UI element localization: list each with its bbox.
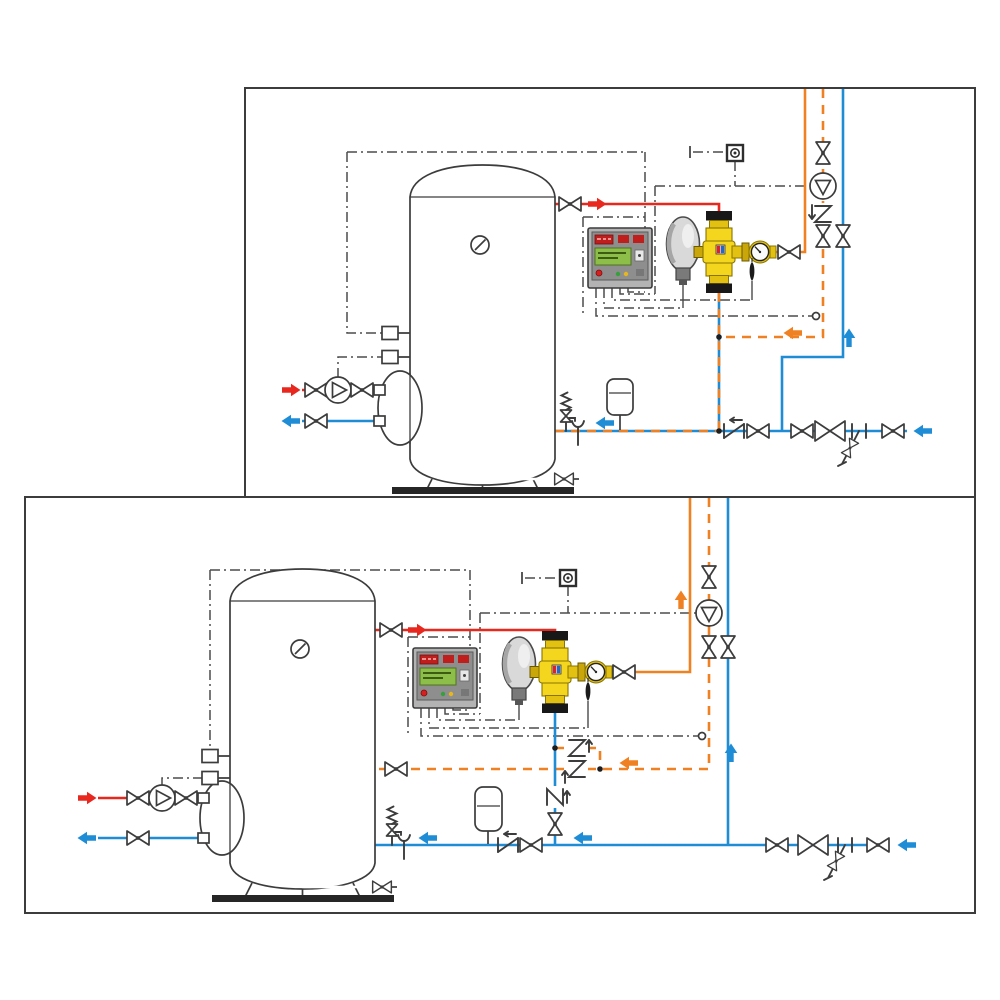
panel-bottom-scheme [25, 497, 975, 913]
tank-sensor-upper [202, 750, 218, 763]
tank-base-plate [392, 487, 574, 494]
check-valve-swing [498, 832, 518, 853]
junction [716, 428, 722, 434]
cold-flow-arrow [282, 415, 301, 428]
ball-valve [867, 838, 889, 852]
ball-valve [778, 245, 800, 259]
ball-valve [882, 424, 904, 438]
tank-base-plate [212, 895, 394, 902]
tank-drain-valve [373, 881, 392, 893]
mixing-valve-assembly [667, 211, 777, 293]
cold-recirc-combined-overlay [555, 293, 719, 431]
ball-valve [380, 623, 402, 637]
balancing-valve [815, 421, 845, 441]
recirculation-pump [810, 173, 836, 199]
primary-pump [149, 785, 175, 811]
ball-valve [766, 838, 788, 852]
recirculation-pump [696, 600, 722, 626]
tank-drain-valve [555, 473, 574, 485]
mixing-controller [588, 228, 652, 288]
storage-tank-bottom [198, 569, 397, 902]
ball-valve [702, 566, 716, 588]
ball-valve [613, 665, 635, 679]
mixed-water-riser [776, 89, 805, 252]
cold-water-riser [782, 89, 843, 431]
hot-flow-arrow [408, 624, 427, 637]
page [0, 0, 1000, 1000]
ball-valve [559, 197, 581, 211]
cold-flow-arrow [78, 832, 97, 845]
ball-valve [520, 838, 542, 852]
cold-flow-arrow [843, 329, 856, 348]
storage-tank-top [374, 165, 579, 494]
safety-relief-valve [387, 807, 411, 860]
ball-valve [816, 142, 830, 164]
recirculation-sensor-icon [699, 733, 706, 740]
ball-valve [175, 791, 197, 805]
hot-flow-arrow [78, 792, 97, 805]
cold-flow-arrow [725, 744, 738, 763]
ball-valve [747, 424, 769, 438]
recirc-flow-arrow [784, 327, 803, 340]
ball-valve [816, 225, 830, 247]
ball-valve [721, 636, 735, 658]
safety-relief-valve [561, 393, 585, 446]
balancing-valve [798, 835, 828, 855]
recirc-flow-arrow [620, 757, 639, 770]
mixed-flow-arrow [675, 591, 688, 610]
heat-exchanger-flange [378, 371, 422, 445]
heat-exchanger-flange [200, 781, 244, 855]
junction [552, 745, 558, 751]
expansion-vessel [475, 787, 502, 844]
ball-valve [305, 383, 327, 397]
ball-valve [351, 383, 373, 397]
sensor-wiring-top [338, 152, 812, 378]
ball-valve [305, 414, 327, 428]
ball-valve [127, 791, 149, 805]
hot-flow-arrow [282, 384, 301, 397]
cold-flow-arrow [574, 832, 593, 845]
ambient-sensor [560, 570, 576, 586]
ball-valve [385, 762, 407, 776]
cold-inlet-arrow [898, 839, 917, 852]
mixed-water-riser [612, 498, 690, 672]
cold-inlet-arrow [914, 425, 933, 438]
mixing-controller [413, 648, 477, 708]
tank-sensor-lower [202, 772, 218, 785]
ball-valve [548, 813, 562, 835]
check-valve-swing [724, 418, 744, 439]
panel-top-scheme [245, 88, 975, 497]
ball-valve [791, 424, 813, 438]
cold-flow-arrow [596, 417, 615, 430]
tank-sensor-lower [382, 351, 398, 364]
recirculation-sensor-icon [813, 313, 820, 320]
ball-valve [702, 636, 716, 658]
tank-sensor-upper [382, 327, 398, 340]
ball-valve [127, 831, 149, 845]
junction [716, 334, 722, 340]
cold-flow-arrow [419, 832, 438, 845]
ambient-sensor [727, 145, 743, 161]
junction [597, 766, 603, 772]
drain-cock [827, 851, 844, 871]
mixing-valve-assembly [503, 631, 613, 713]
cold-recirc-combined-pipe [555, 293, 719, 431]
schematic-canvas [0, 0, 1000, 1000]
primary-pump [325, 377, 351, 403]
ball-valve [836, 225, 850, 247]
hot-flow-arrow [588, 198, 607, 211]
